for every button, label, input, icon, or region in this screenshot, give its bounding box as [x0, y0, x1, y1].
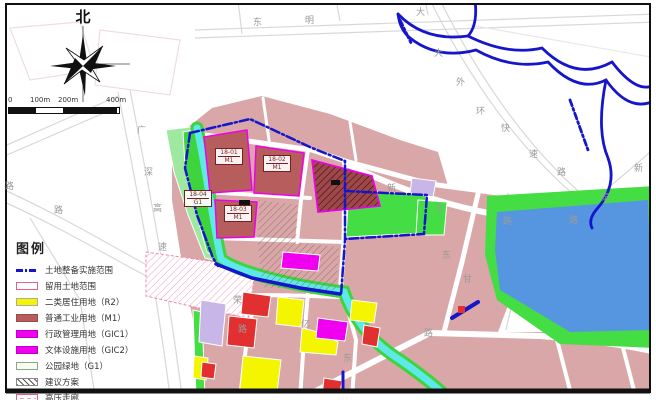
legend-item-label: 建议方案: [45, 376, 79, 388]
legend-item-proposal: 建议方案: [16, 376, 174, 388]
legend-item-boundary: 土地整备实施范围: [16, 264, 174, 276]
g1-swatch-icon: [16, 362, 38, 370]
water-body: [485, 186, 656, 348]
scale-tick: 0: [8, 96, 12, 104]
proposal-swatch-icon: [16, 378, 38, 386]
parcel-code-badge: 18-04G1: [184, 190, 212, 207]
legend-items: 土地整备实施范围留用土地范围二类居住用地（R2）普通工业用地（M1）行政管理用地…: [16, 264, 174, 400]
parcel-use-code: M1: [266, 163, 288, 171]
parcel-use-code: M1: [218, 156, 240, 164]
road-name-label: 快: [501, 124, 510, 134]
parcel-code-badge: 18-01M1: [215, 148, 243, 165]
reserved-swatch-icon: [16, 282, 38, 290]
parcel-code: 18-02: [266, 156, 288, 163]
scale-tick-labels: 0100m200m400m: [8, 96, 128, 106]
legend-item-g1: 公园绿地（G1）: [16, 360, 174, 372]
road-name-label: 外: [456, 78, 465, 88]
road-name-label: 高: [153, 204, 162, 214]
scale-segment: [36, 108, 63, 113]
parcel-code: 18-03: [227, 206, 249, 213]
legend-title: 图例: [16, 238, 174, 257]
legend-item-gic2: 文体设施用地（GIC2）: [16, 344, 174, 356]
r2-swatch-icon: [16, 298, 38, 306]
road-name-label: 东: [343, 354, 352, 364]
scale-tick: 400m: [106, 96, 126, 104]
legend-panel: 图例 土地整备实施范围留用土地范围二类居住用地（R2）普通工业用地（M1）行政管…: [16, 238, 174, 400]
legend-item-label: 二类居住用地（R2）: [45, 296, 124, 308]
legend-item-hv: 高压走廊: [16, 392, 174, 400]
planning-map-frame: 北 0100m200m400m 图例 土地整备实施范围留用土地范围二类居住用地（…: [0, 0, 656, 400]
legend-item-label: 土地整备实施范围: [45, 264, 113, 276]
road-name-label: 大: [416, 8, 425, 18]
parcel-code-badge: 18-03M1: [224, 205, 252, 222]
parcel-code: 18-04: [187, 191, 209, 198]
scale-bar-segments: [8, 107, 120, 114]
parcel-code-badge: 18-02M1: [263, 155, 291, 172]
legend-item-label: 文体设施用地（GIC2）: [45, 344, 133, 356]
scale-segment: [63, 108, 117, 113]
scale-bar: 0100m200m400m: [8, 96, 128, 118]
road-name-label: 泰: [601, 193, 610, 203]
road-name-label: 路: [54, 206, 63, 216]
road-name-label: 亿: [301, 320, 310, 330]
legend-item-label: 公园绿地（G1）: [45, 360, 108, 372]
road-name-label: 速: [158, 243, 167, 253]
road-name-label: 路: [557, 168, 566, 178]
road-name-label: 广: [137, 126, 146, 136]
road-name-label: 深: [144, 168, 153, 178]
road-name-label: 路: [5, 182, 14, 192]
road-name-label: 东: [253, 18, 262, 28]
road-name-label: 明: [305, 16, 314, 26]
scale-tick: 200m: [58, 96, 78, 104]
road-name-label: 甘: [463, 275, 472, 285]
road-name-label: 路: [238, 325, 247, 335]
parcel-code: 18-01: [218, 149, 240, 156]
compass-rose: 北: [28, 4, 138, 104]
road-name-label: 路: [569, 216, 578, 226]
road-name-label: 新: [634, 164, 643, 174]
hv-swatch-icon: [16, 394, 38, 400]
road-name-label: 路: [424, 329, 433, 339]
road-name-label: 新: [387, 184, 396, 194]
legend-item-label: 高压走廊: [45, 392, 79, 400]
road-name-label: 路: [503, 217, 512, 227]
legend-item-r2: 二类居住用地（R2）: [16, 296, 174, 308]
road-name-label: 东: [442, 251, 451, 261]
road-name-label: 速: [529, 150, 538, 160]
scale-segment: [9, 108, 36, 113]
legend-item-reserved: 留用土地范围: [16, 280, 174, 292]
legend-item-gic1: 行政管理用地（GIC1）: [16, 328, 174, 340]
gic2-swatch-icon: [16, 346, 38, 354]
legend-item-label: 行政管理用地（GIC1）: [45, 328, 133, 340]
boundary-swatch-icon: [16, 269, 38, 272]
legend-item-label: 留用土地范围: [45, 280, 96, 292]
legend-item-label: 普通工业用地（M1）: [45, 312, 126, 324]
m1-swatch-icon: [16, 314, 38, 322]
compass-star-icon: [28, 4, 138, 104]
gic1-swatch-icon: [16, 330, 38, 338]
legend-item-m1: 普通工业用地（M1）: [16, 312, 174, 324]
road-name-label: 环: [476, 107, 485, 117]
road-name-label: 大: [434, 49, 443, 59]
scale-tick: 100m: [30, 96, 50, 104]
road-name-label: 荣: [233, 296, 242, 306]
parcel-use-code: G1: [187, 198, 209, 206]
road-name-label: 玉: [435, 204, 444, 214]
parcel-use-code: M1: [227, 213, 249, 221]
